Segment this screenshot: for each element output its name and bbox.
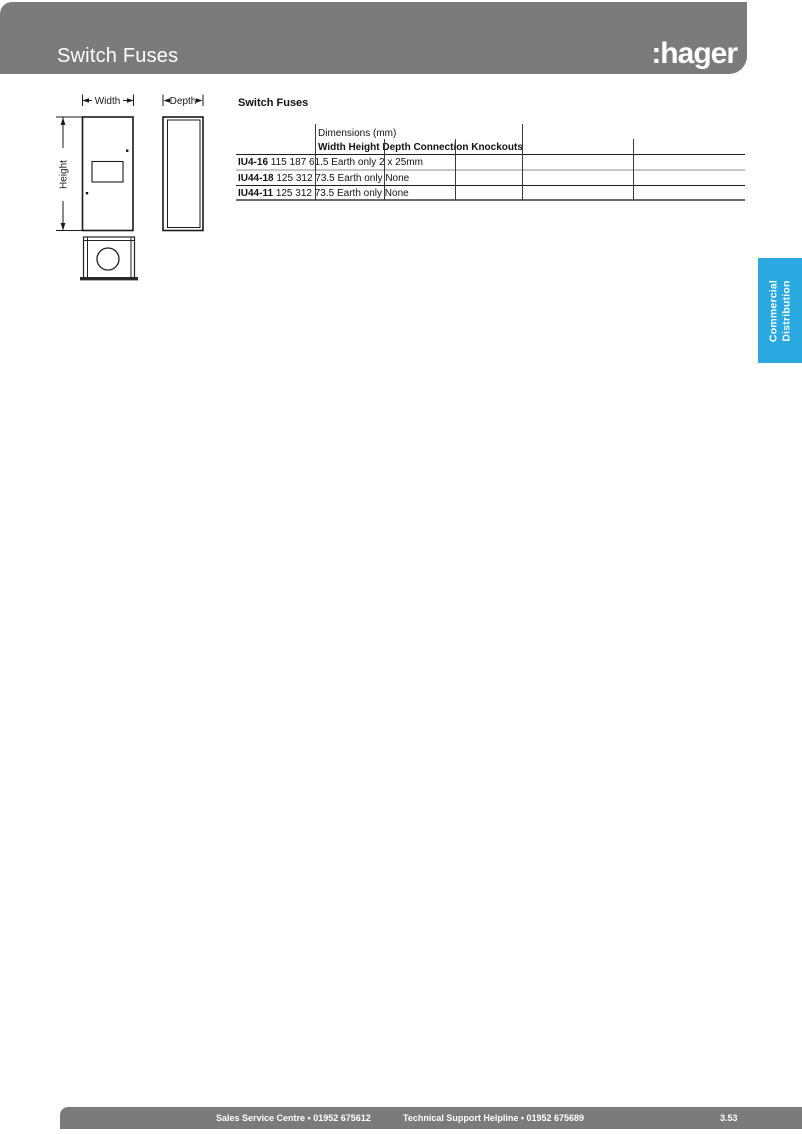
depth-dimension: Depth xyxy=(163,95,203,108)
section-tab-line1: Commercial xyxy=(767,279,780,341)
model-specs: 125 312 73.5 Earth only None xyxy=(276,173,409,184)
table-caption: Switch Fuses xyxy=(238,97,308,109)
page-footer: Sales Service Centre • 01952 675612 Tech… xyxy=(60,1107,802,1129)
table-column-rule xyxy=(455,139,456,200)
table-rule xyxy=(236,185,745,186)
table-row: IU4-16 115 187 61.5 Earth only 2 x 25mm xyxy=(238,157,423,168)
width-dimension: Width xyxy=(83,95,134,108)
knockout-circle-icon xyxy=(97,248,119,270)
table-column-rule xyxy=(522,124,523,200)
model-specs: 115 187 61.5 Earth only 2 x 25mm xyxy=(271,157,423,168)
bottom-view-drawing xyxy=(80,237,138,279)
section-tab-line2: Distribution xyxy=(780,280,793,341)
page-header: Switch Fuses :hager xyxy=(0,2,747,74)
front-view-drawing xyxy=(83,117,134,231)
screw-dot-icon xyxy=(126,150,128,152)
hager-logo: :hager xyxy=(651,37,737,71)
arrow-up-icon xyxy=(61,118,66,126)
width-dimension-label: Width xyxy=(95,96,121,107)
table-column-rule xyxy=(315,124,316,200)
table-column-header: Width Height Depth Connection Knockouts xyxy=(318,142,523,153)
arrow-right-icon xyxy=(127,98,134,103)
product-dimension-diagram: Width Height Depth xyxy=(40,88,216,290)
arrow-down-icon xyxy=(61,223,66,231)
arrow-left-icon xyxy=(83,98,90,103)
table-rule xyxy=(236,154,745,155)
table-column-rule xyxy=(633,139,634,200)
section-tab-label: Commercial Distribution xyxy=(758,258,802,363)
section-tab-commercial-distribution[interactable]: Commercial Distribution xyxy=(758,258,802,363)
table-column-rule xyxy=(384,139,385,200)
table-dimensions-label: Dimensions (mm) xyxy=(318,128,396,139)
model-specs: 125 312 73.5 Earth only None xyxy=(276,188,409,199)
page-number: 3.53 xyxy=(720,1113,738,1123)
sales-service-contact: Sales Service Centre • 01952 675612 xyxy=(216,1113,371,1123)
side-view-drawing xyxy=(163,117,203,231)
arrow-right-icon xyxy=(196,98,203,103)
table-rule xyxy=(236,199,745,201)
page-title: Switch Fuses xyxy=(57,45,178,68)
catalog-page: Switch Fuses :hager Width xyxy=(0,0,802,1134)
screw-dot-icon xyxy=(86,192,88,194)
technical-support-contact: Technical Support Helpline • 01952 67568… xyxy=(403,1113,584,1123)
depth-dimension-label: Depth xyxy=(170,96,197,107)
model-code: IU44-18 xyxy=(238,173,274,184)
model-code: IU44-11 xyxy=(238,188,273,199)
table-rule xyxy=(236,169,745,171)
height-dimension-label: Height xyxy=(59,160,70,189)
height-dimension: Height xyxy=(56,117,82,231)
model-code: IU4-16 xyxy=(238,157,268,168)
